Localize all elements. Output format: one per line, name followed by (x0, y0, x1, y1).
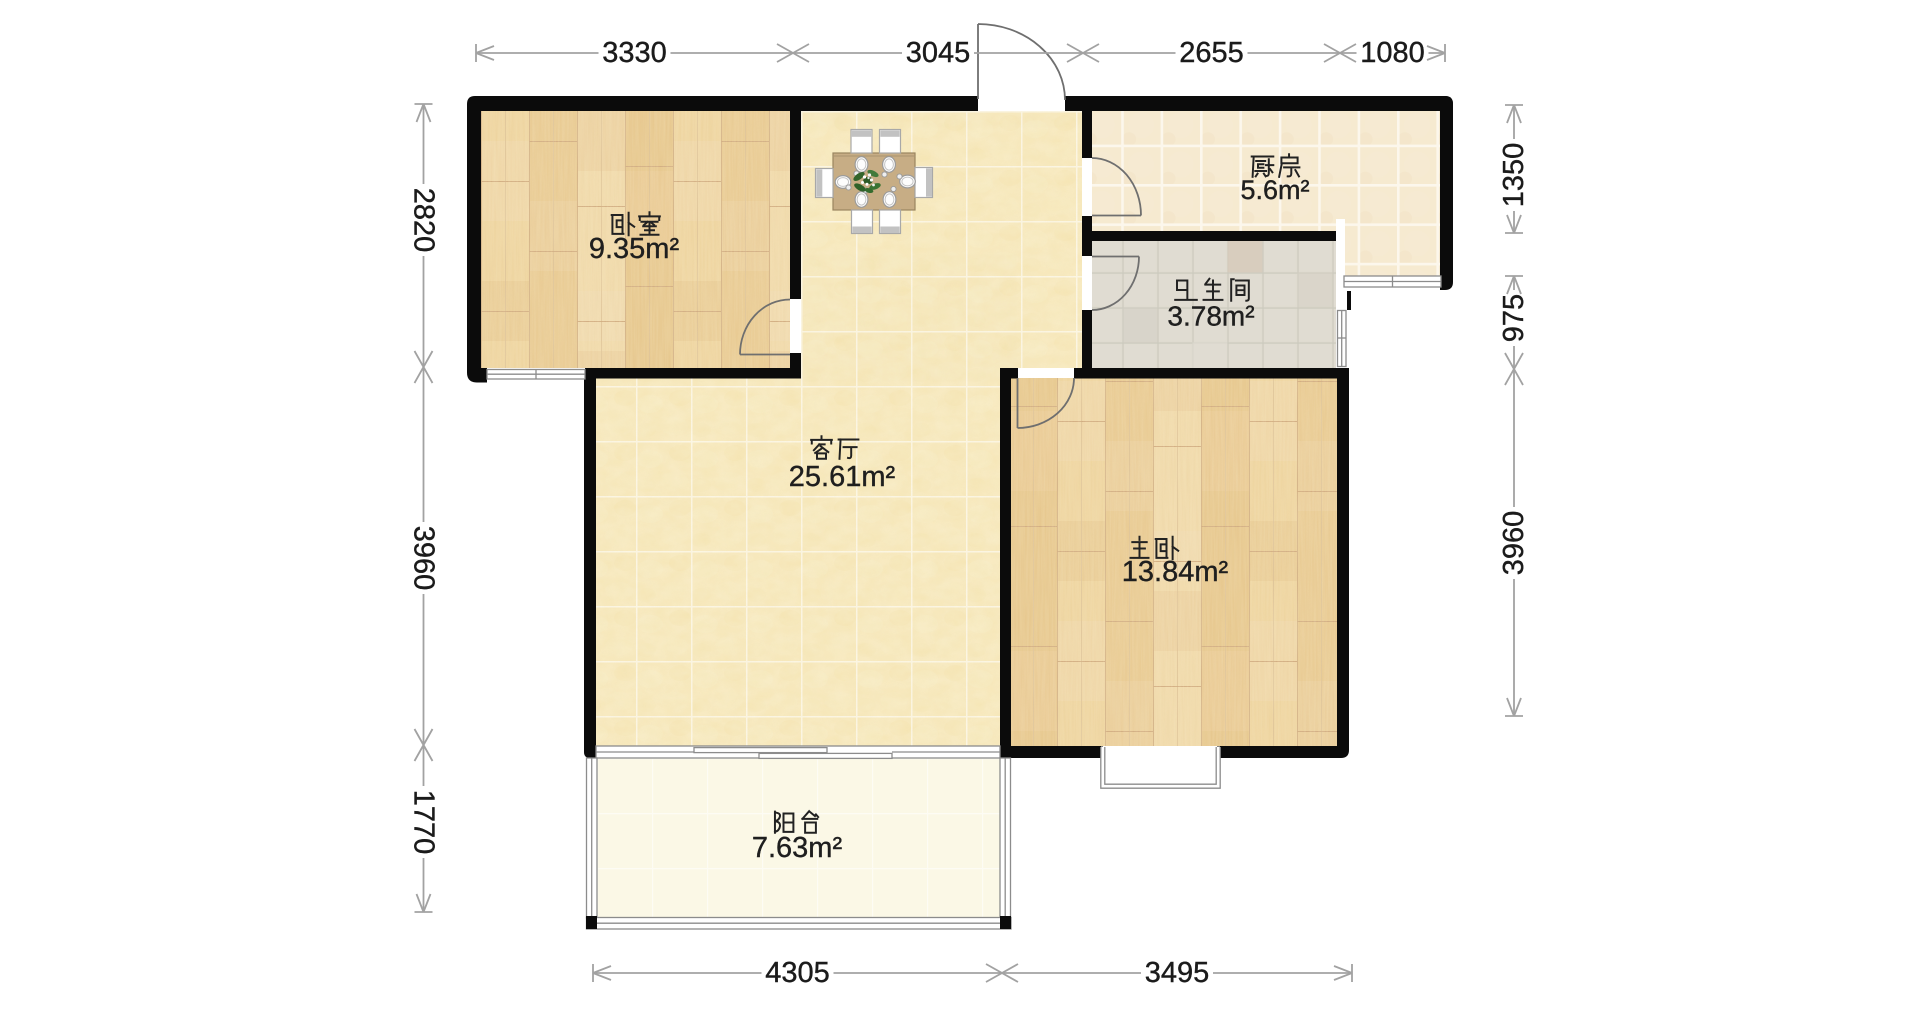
svg-text:3.78m²: 3.78m² (1167, 301, 1254, 332)
svg-text:2655: 2655 (1179, 37, 1244, 69)
svg-text:13.84m²: 13.84m² (1122, 556, 1229, 588)
svg-text:3960: 3960 (1498, 511, 1530, 576)
svg-text:3045: 3045 (906, 37, 971, 69)
svg-text:9.35m²: 9.35m² (589, 233, 680, 265)
svg-text:1770: 1770 (408, 790, 440, 855)
svg-text:2820: 2820 (408, 188, 440, 253)
svg-text:3330: 3330 (602, 37, 667, 69)
svg-text:5.6m²: 5.6m² (1240, 175, 1309, 205)
svg-text:3960: 3960 (408, 526, 440, 591)
svg-text:1080: 1080 (1360, 37, 1425, 69)
svg-text:25.61m²: 25.61m² (789, 461, 896, 493)
svg-text:3495: 3495 (1145, 957, 1210, 989)
svg-text:7.63m²: 7.63m² (752, 832, 843, 864)
svg-text:1350: 1350 (1498, 143, 1530, 208)
svg-text:975: 975 (1498, 294, 1530, 342)
svg-text:4305: 4305 (765, 957, 830, 989)
